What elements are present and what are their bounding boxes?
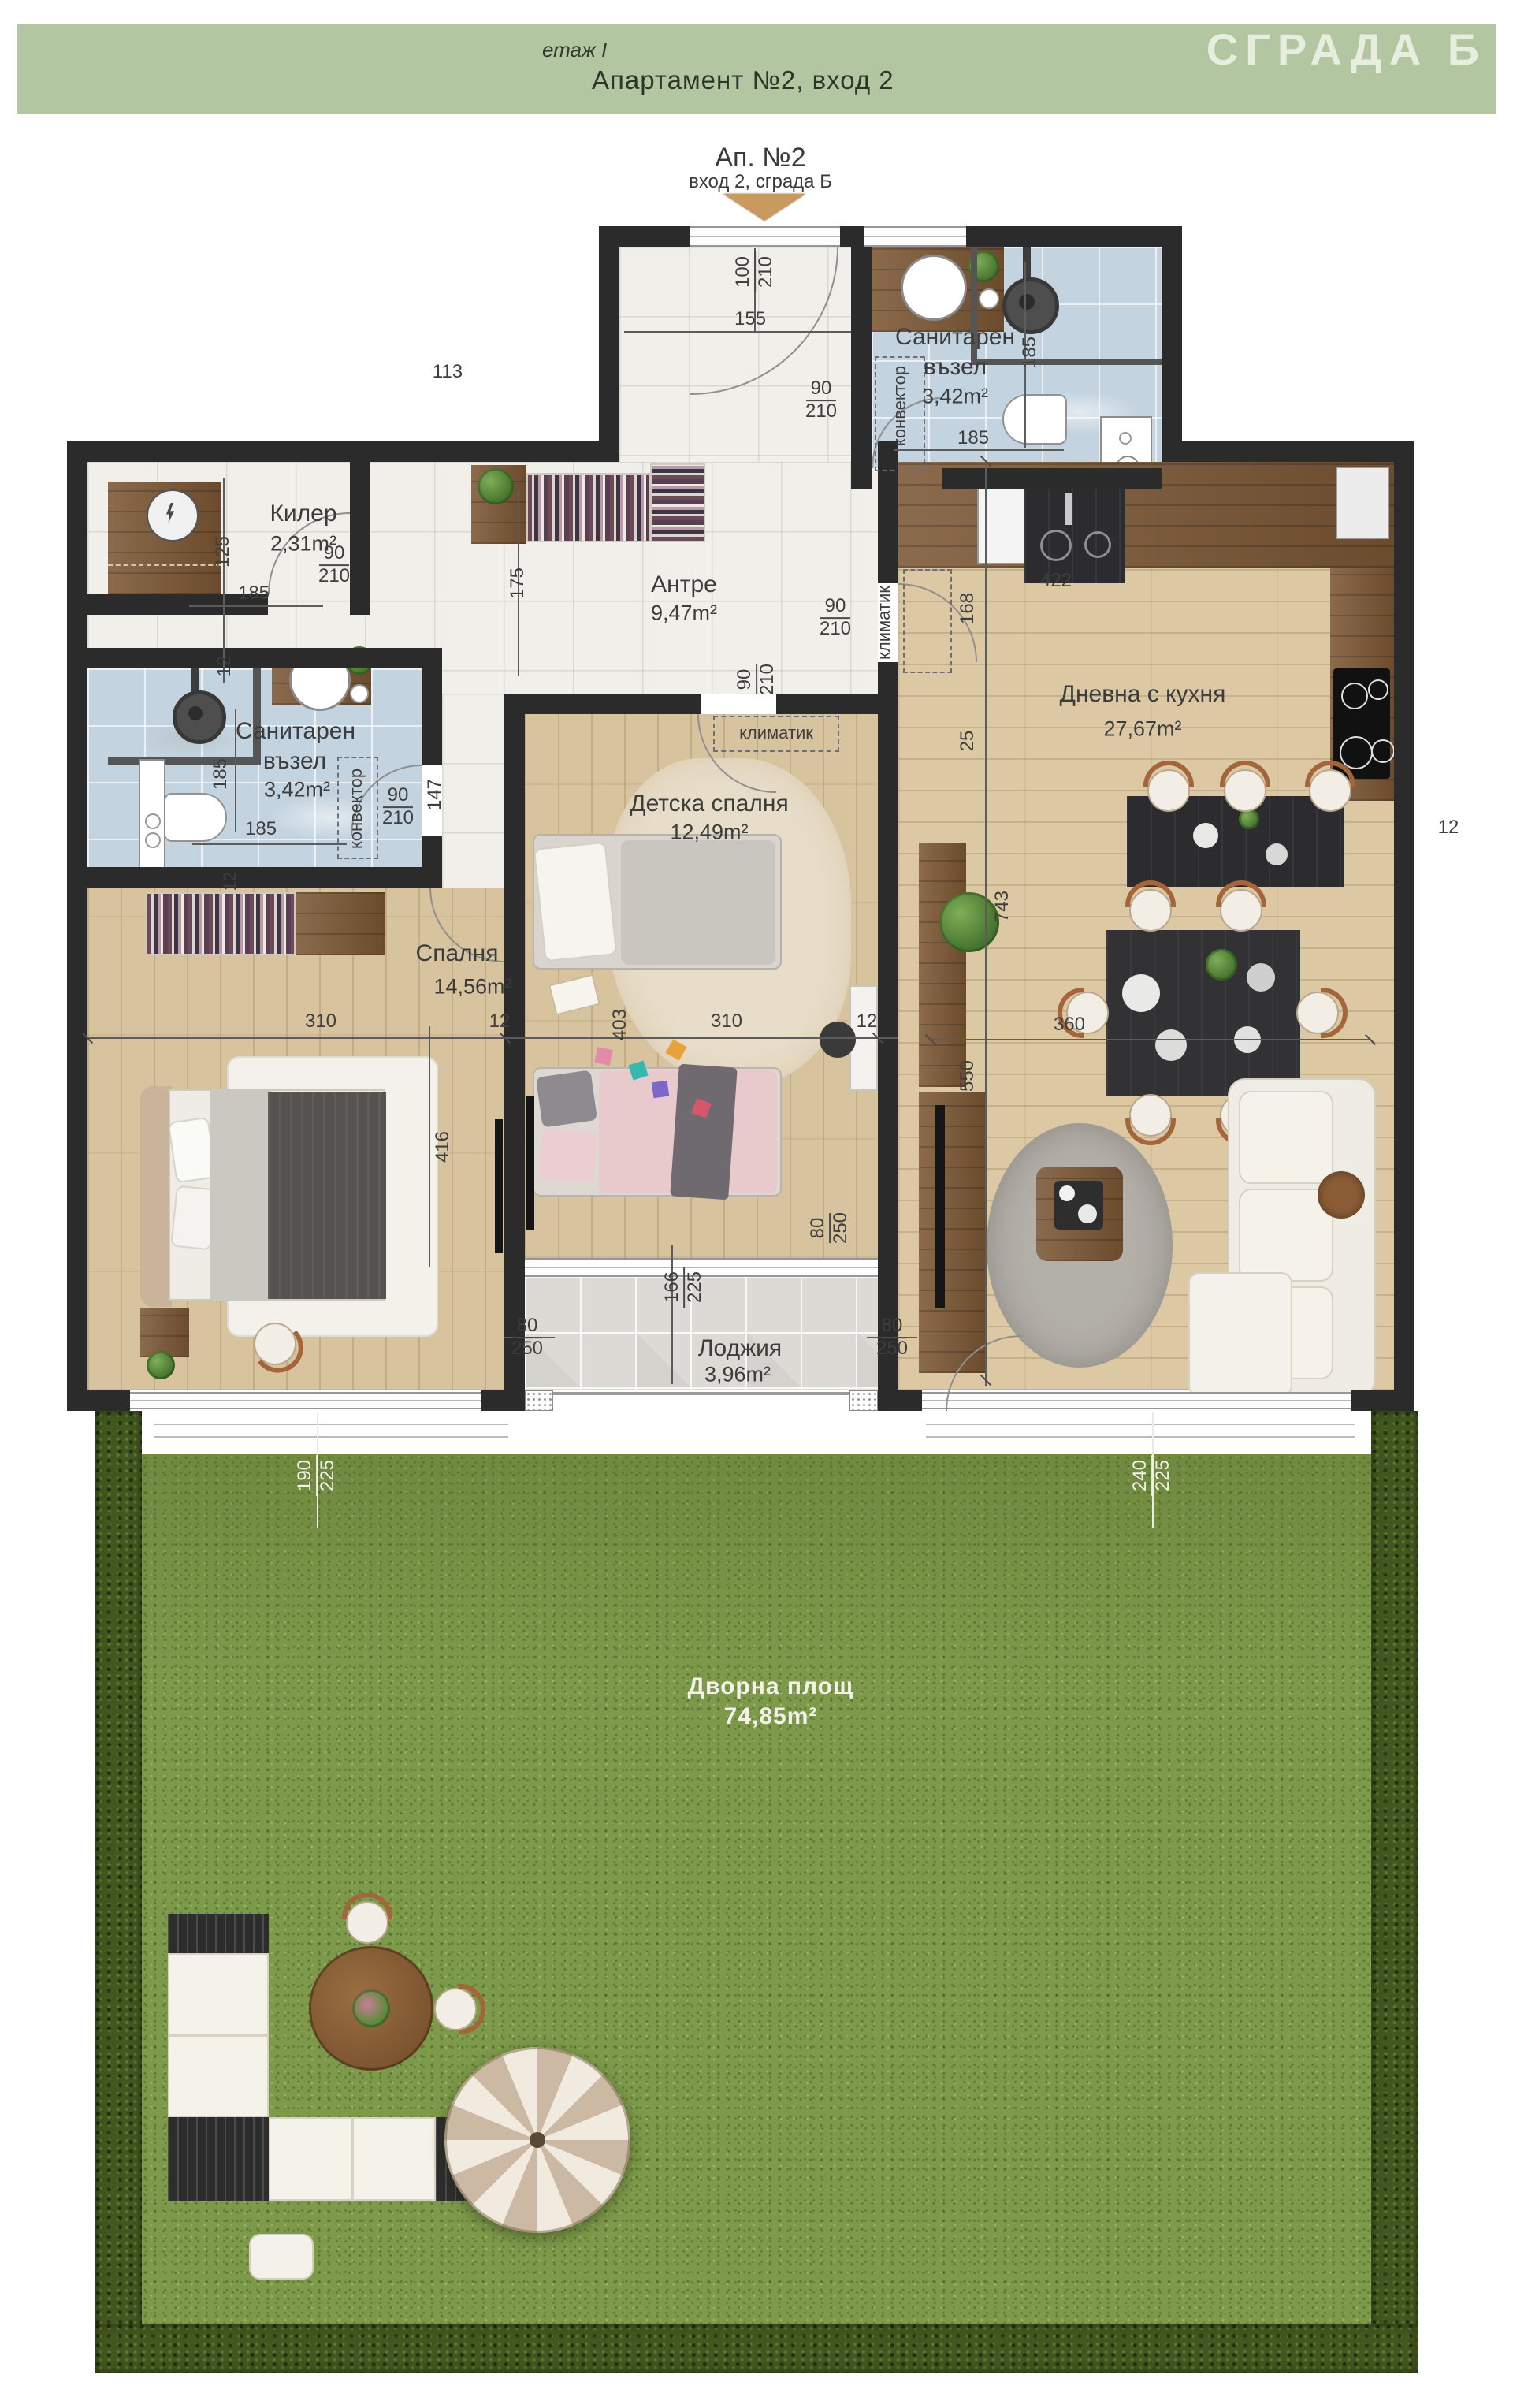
wall <box>851 468 872 489</box>
floor-hall-sliver <box>442 694 504 888</box>
dim-90-210-bath-top: 90210 <box>805 378 837 422</box>
entrance-callout-subtitle: вход 2, сграда Б <box>689 173 832 192</box>
sofa-chaise <box>1188 1272 1292 1397</box>
wall <box>350 594 370 615</box>
dim-185-h-bath-top: 185 <box>957 429 989 448</box>
dim-550: 550 <box>958 1060 977 1092</box>
wall <box>875 1390 922 1411</box>
terrace-band <box>142 1411 1371 1454</box>
sink-basin-2 <box>1084 531 1111 558</box>
bath-left-soap-dish <box>350 684 369 703</box>
island-plant <box>1239 809 1259 829</box>
bedroom-wardrobe-rack <box>146 892 296 955</box>
dim-12-wardrobe: 12 <box>221 872 239 891</box>
label-klimatik-living: климатик <box>875 586 893 660</box>
dim-12-kiler: 12 <box>215 656 234 677</box>
garden-sofa-cushion-2 <box>168 2035 269 2117</box>
room-label-loggia: Лоджия <box>698 1337 782 1360</box>
wall <box>87 867 442 888</box>
tv-living <box>935 1105 945 1308</box>
dim-line <box>985 467 987 1386</box>
wall <box>1162 226 1182 462</box>
bath-top-window <box>864 226 966 247</box>
room-label-kiler: Килер <box>270 502 336 526</box>
kitchen-faucet <box>1065 493 1072 525</box>
dim-12-kitchen: 12 <box>1438 818 1459 837</box>
room-area-loggia: 3,96m² <box>704 1364 771 1386</box>
antre-wardrobe-rack <box>526 473 650 542</box>
shower-head-center <box>1019 294 1035 310</box>
wall <box>481 1390 528 1411</box>
island-plate-2 <box>1266 843 1288 865</box>
label-klimatik-kids: климатик <box>739 724 813 742</box>
dim-12-bedroom: 12 <box>489 1012 511 1031</box>
apartment-title: Апартамент №2, вход 2 <box>592 65 894 95</box>
room-label-bath-left-2: възел <box>263 750 326 773</box>
wall <box>878 662 898 694</box>
wall <box>87 648 442 668</box>
bedroom-plant <box>147 1351 175 1379</box>
entrance-sill <box>690 226 840 247</box>
room-area-bath-left: 3,42m² <box>264 780 330 801</box>
room-area-living: 27,67m² <box>1103 719 1181 740</box>
dim-line <box>192 843 347 845</box>
garden-table-flowers <box>352 1989 390 2027</box>
room-label-kids: Детска спалня <box>630 792 788 816</box>
dim-line <box>223 478 225 683</box>
room-label-bath-top-1: Санитарен <box>895 326 1015 349</box>
radiator-knob-2 <box>145 832 161 848</box>
dim-743: 743 <box>993 891 1012 922</box>
dim-310-bedroom: 310 <box>305 1012 336 1031</box>
burner-4 <box>1371 739 1395 763</box>
dim-360: 360 <box>1054 1015 1085 1034</box>
bar-chair-1 <box>1147 769 1190 812</box>
wall <box>1182 441 1394 462</box>
wall <box>851 247 872 468</box>
bath-top-soap-dish <box>979 288 999 309</box>
garden-sofa-cushion-4 <box>352 2117 436 2201</box>
wall <box>67 441 619 462</box>
dim-90-210-living-door: 90210 <box>820 596 851 640</box>
label-konvektor-left: конвектор <box>348 769 365 849</box>
garden-chair-top <box>346 1901 388 1944</box>
building-label: СГРАДА Б <box>1206 24 1486 75</box>
burner-3 <box>1340 736 1373 769</box>
dim-403: 403 <box>611 1009 630 1040</box>
room-label-bath-left-1: Санитарен <box>236 720 355 743</box>
wall <box>67 441 87 1411</box>
tray-vase-2 <box>1078 1204 1097 1223</box>
dim-125: 125 <box>214 536 232 568</box>
bath-top-sink <box>901 255 967 321</box>
dim-185-v-bath-top: 185 <box>1020 337 1039 368</box>
garden-ottoman <box>249 2234 314 2280</box>
tv-panel <box>919 1092 985 1373</box>
dim-185-h-bath-left: 185 <box>245 820 277 839</box>
room-area-kids: 12,49m² <box>670 822 748 843</box>
dining-chair-right <box>1296 992 1339 1034</box>
wall <box>1394 441 1414 1411</box>
boiler <box>147 489 199 542</box>
dining-centerpiece <box>1206 949 1237 981</box>
washer-knob <box>1119 432 1132 445</box>
wall <box>67 1390 130 1411</box>
dim-80-250-vertical: 80250 <box>808 1212 852 1244</box>
dim-line <box>624 331 851 333</box>
floor-label: етаж I <box>542 38 607 62</box>
kiler-shelf-line <box>108 564 221 566</box>
dim-line <box>429 1026 430 1267</box>
dim-113: 113 <box>433 363 463 381</box>
room-label-antre: Антре <box>651 573 717 597</box>
burner-1 <box>1341 683 1368 709</box>
bath-left-toilet <box>164 793 227 842</box>
dim-line <box>189 605 323 607</box>
sink-basin-1 <box>1040 530 1072 561</box>
kids-bed-2-throw <box>670 1064 738 1200</box>
kids-bed-1-duvet <box>621 840 775 965</box>
kids-desk-chair <box>820 1022 856 1058</box>
dim-166-225: 166225 <box>662 1267 706 1308</box>
hedge-right <box>1371 1411 1418 2373</box>
dim-416: 416 <box>433 1131 452 1163</box>
sofa-side-table <box>1318 1171 1365 1219</box>
antre-plant <box>478 468 514 504</box>
kitchen-sink-unit <box>1024 487 1125 583</box>
terrace-line-3 <box>926 1424 1355 1425</box>
bed-blanket <box>268 1092 386 1299</box>
kids-bed-1-pillow <box>533 842 618 962</box>
shower2-partition-v <box>253 668 261 765</box>
dim-line <box>894 449 1064 451</box>
room-area-kiler: 2,31m² <box>270 534 336 555</box>
wall <box>599 226 619 462</box>
dim-422: 422 <box>1040 571 1072 590</box>
dining-plate-2 <box>1155 1029 1187 1061</box>
dim-line <box>930 1039 1371 1040</box>
dim-185-kiler: 185 <box>238 584 270 603</box>
garden-sofa-slat-corner <box>168 2117 269 2201</box>
sofa-cushion-1 <box>1239 1091 1333 1184</box>
nightstand <box>140 1308 189 1357</box>
dining-chair-bottom-1 <box>1129 1094 1172 1137</box>
dining-plate-3 <box>1247 963 1275 992</box>
wall <box>1351 1390 1414 1411</box>
wall <box>840 226 864 247</box>
dining-chair-top-2 <box>1220 889 1262 932</box>
bed-duvet <box>210 1089 271 1301</box>
toy-block-1 <box>594 1047 613 1066</box>
garden-sofa-cushion-1 <box>168 1953 269 2035</box>
room-label-bedroom: Спалня <box>416 942 499 966</box>
wall <box>504 694 525 1411</box>
garden-sofa-cushion-3 <box>269 2117 352 2201</box>
room-area-yard: 74,85m² <box>724 1705 818 1729</box>
bar-chair-3 <box>1309 769 1351 812</box>
kids-bed-2-pillow-1 <box>536 1070 597 1127</box>
dim-168: 168 <box>958 593 977 624</box>
kids-bed-2-pillow-2 <box>538 1128 598 1184</box>
tray-vase-1 <box>1059 1185 1075 1201</box>
dim-190-225: 190225 <box>295 1455 339 1496</box>
room-area-bedroom: 14,56m² <box>433 977 511 998</box>
sideboard <box>919 843 966 1087</box>
antre-wardrobe-rack-2 <box>650 463 705 542</box>
dim-155: 155 <box>734 310 766 329</box>
dining-chair-top-1 <box>1129 889 1172 932</box>
bar-chair-2 <box>1224 769 1266 812</box>
terrace-line-1 <box>154 1424 508 1425</box>
wall <box>878 714 898 1411</box>
loggia-hatch-right <box>849 1390 878 1411</box>
island-plate-1 <box>1193 823 1218 848</box>
dim-12-kids: 12 <box>857 1012 878 1031</box>
wall <box>422 648 442 765</box>
dim-100-210: 100210 <box>733 251 777 292</box>
shower-partition-h <box>971 359 1162 365</box>
shower2-partition-h <box>108 757 259 765</box>
bath-top-toilet <box>1002 394 1067 445</box>
wall <box>350 462 370 615</box>
dim-185-v-bath-left: 185 <box>211 758 230 790</box>
dining-plate-1 <box>1122 974 1160 1012</box>
dim-175: 175 <box>508 568 527 599</box>
toy-block-4 <box>652 1081 670 1099</box>
radiator-knob-1 <box>145 813 161 829</box>
room-label-living: Дневна с кухня <box>1060 683 1226 706</box>
wall <box>942 468 1162 489</box>
kitchen-window-niche <box>1336 467 1389 539</box>
dim-90-210-kids-door: 90210 <box>734 664 779 695</box>
room-area-bath-top: 3,42m² <box>922 386 988 408</box>
wall <box>966 226 1162 247</box>
living-plant <box>939 892 999 952</box>
room-area-antre: 9,47m² <box>651 603 717 624</box>
loggia-rail <box>528 1392 875 1395</box>
floor-plan-page: етаж I Апартамент №2, вход 2 СГРАДА Б Ап… <box>0 0 1513 2408</box>
shower2-head-center <box>188 706 203 720</box>
dining-table <box>1106 930 1300 1096</box>
loggia-hatch-left <box>525 1390 553 1411</box>
dim-310-kids: 310 <box>711 1012 742 1031</box>
entrance-callout-title: Ап. №2 <box>715 144 805 171</box>
tv-kids <box>526 1096 534 1230</box>
dim-90-210-bath-left: 90210 <box>382 785 414 829</box>
wall <box>776 694 898 714</box>
burner-2 <box>1368 679 1388 700</box>
bed-headboard <box>140 1086 172 1307</box>
bedroom-wardrobe-cabinet <box>296 892 385 955</box>
hedge-bottom <box>95 2324 1418 2373</box>
terrace-line-4 <box>926 1436 1355 1438</box>
tv-bedroom <box>495 1119 503 1253</box>
garden-chair-right <box>434 1988 477 2030</box>
wall <box>504 694 701 714</box>
dim-25: 25 <box>958 731 977 752</box>
hedge-left <box>95 1411 142 2373</box>
label-konvektor-top: конвектор <box>891 366 909 446</box>
umbrella-pole <box>530 2132 545 2148</box>
dim-80-250-loggia-left: 80250 <box>511 1316 543 1360</box>
bedroom-window <box>130 1392 481 1409</box>
dim-240-225: 240225 <box>1130 1455 1174 1496</box>
terrace-line-2 <box>154 1436 508 1438</box>
garden-sofa-slat-top <box>168 1914 269 1953</box>
room-label-bath-top-2: възел <box>924 355 987 379</box>
klimatik-box-living <box>903 569 952 673</box>
entrance-pointer-icon <box>723 194 805 221</box>
room-label-yard: Дворна площ <box>688 1675 854 1699</box>
dim-147: 147 <box>426 779 444 810</box>
dim-80-250-loggia-right: 80250 <box>876 1316 908 1360</box>
dim-line <box>87 1037 898 1039</box>
